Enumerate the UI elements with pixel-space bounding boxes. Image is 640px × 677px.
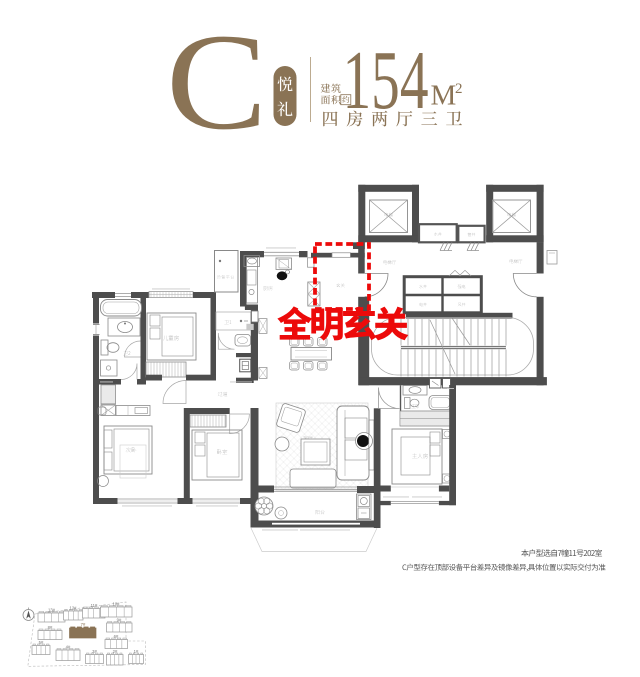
svg-text:12#: 12# [70,606,78,611]
svg-text:9#: 9# [117,618,122,623]
svg-text:11#: 11# [91,603,98,608]
svg-text:C: C [166,6,267,158]
svg-text:10#: 10# [113,602,121,607]
svg-text:13#: 13# [48,608,56,613]
svg-text:1#: 1# [134,649,139,654]
svg-text:M: M [431,80,457,112]
svg-text:5#: 5# [39,640,44,645]
svg-text:2#: 2# [113,649,118,654]
svg-text:2: 2 [455,81,463,97]
svg-text:3#: 3# [92,649,97,654]
svg-text:4#: 4# [66,645,71,650]
svg-text:6#: 6# [114,634,119,639]
svg-text:154: 154 [343,34,429,127]
svg-text:7#: 7# [81,622,86,627]
svg-text:8#: 8# [48,625,53,630]
